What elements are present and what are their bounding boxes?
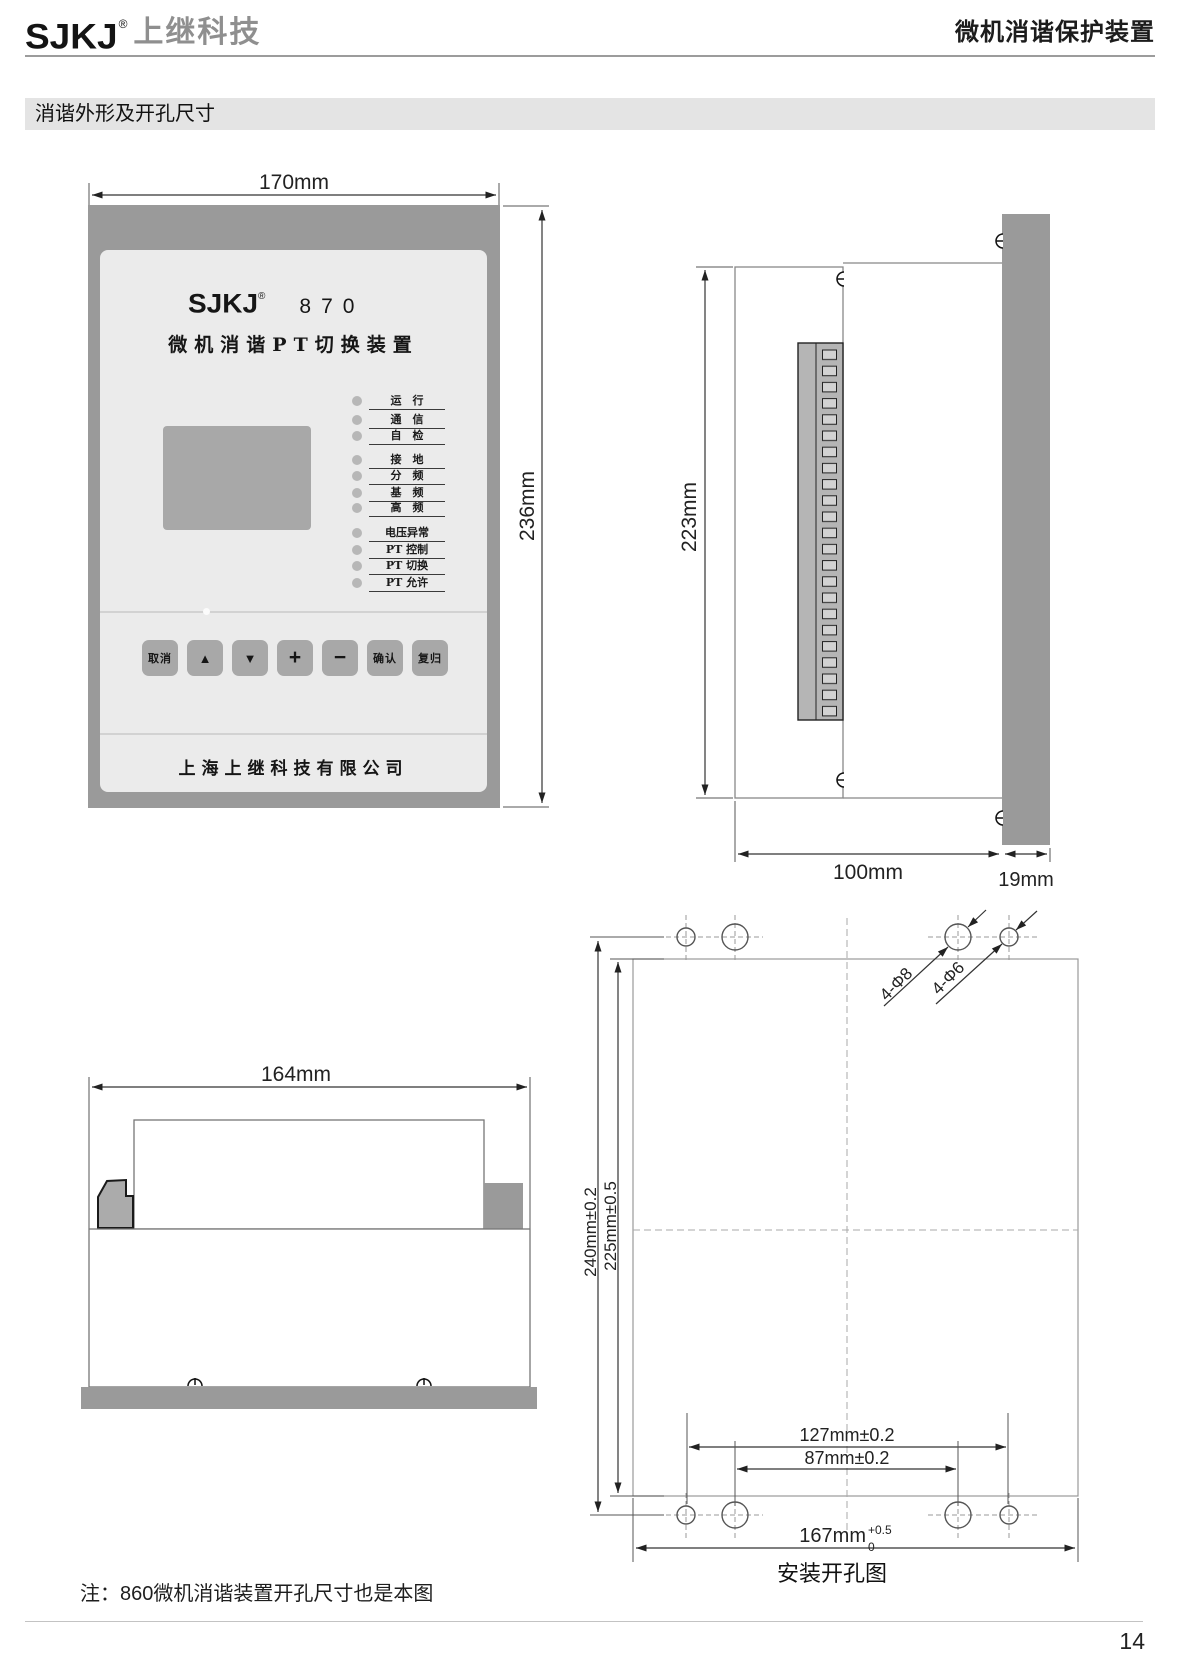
footer-divider bbox=[25, 1621, 1143, 1622]
led-indicator-icon bbox=[352, 431, 362, 441]
button-plus: + bbox=[277, 640, 313, 676]
led-indicator-icon bbox=[352, 415, 362, 425]
led-row: 电压异常 bbox=[352, 525, 445, 540]
led-indicator-icon bbox=[352, 545, 362, 555]
panel-brand: SJKJ®870 bbox=[188, 290, 364, 318]
panel-divider bbox=[100, 611, 487, 613]
label-large-holes: 4-Φ8 bbox=[876, 964, 916, 1004]
dim-install-total: 167mm bbox=[799, 1525, 866, 1547]
led-row: 运 行 bbox=[352, 393, 445, 408]
button-down: ▼ bbox=[232, 640, 268, 676]
manual-page: SJKJ®上继科技 微机消谐保护装置 消谐外形及开孔尺寸 170mm 236mm bbox=[0, 0, 1180, 1668]
dim-install-v-outer: 240mm±0.2 bbox=[581, 1187, 600, 1277]
dim-install-v-inner: 225mm±0.5 bbox=[601, 1181, 620, 1271]
dim-install-total-sup: +0.5 bbox=[868, 1523, 892, 1537]
led-indicator-icon bbox=[352, 396, 362, 406]
led-indicator-icon bbox=[352, 488, 362, 498]
mounting-clip bbox=[98, 1180, 133, 1228]
led-row: PT 控制 bbox=[352, 542, 445, 557]
button-confirm: 确认 bbox=[367, 640, 403, 676]
dim-side-depth: 100mm bbox=[833, 861, 903, 884]
panel-model: 870 bbox=[299, 295, 364, 318]
led-label: 分 频 bbox=[369, 467, 445, 485]
led-label: PT 切换 bbox=[369, 557, 445, 575]
button-minus: − bbox=[322, 640, 358, 676]
led-row: 自 检 bbox=[352, 428, 445, 443]
panel-title: 微机消谐PT切换装置 bbox=[100, 330, 487, 357]
led-indicator-icon bbox=[352, 528, 362, 538]
led-row: PT 允许 bbox=[352, 575, 445, 590]
dim-side-height: 223mm bbox=[678, 482, 701, 552]
front-view-device: SJKJ®870 微机消谐PT切换装置 运 行 通 信 自 检 接 地 分 频 … bbox=[88, 205, 500, 808]
led-label: 电压异常 bbox=[369, 524, 445, 542]
page-number: 14 bbox=[1119, 1628, 1145, 1655]
dim-install-total-sub: 0 bbox=[868, 1540, 875, 1554]
install-caption: 安装开孔图 bbox=[777, 1561, 887, 1586]
led-row: 高 频 bbox=[352, 500, 445, 515]
led-label: 运 行 bbox=[369, 392, 445, 410]
panel-divider bbox=[100, 733, 487, 735]
side-bezel-panel bbox=[1002, 214, 1050, 845]
led-label: PT 允许 bbox=[369, 574, 445, 592]
led-indicator-icon bbox=[352, 471, 362, 481]
button-cancel: 取消 bbox=[142, 640, 178, 676]
led-row: PT 切换 bbox=[352, 558, 445, 573]
footnote: 注：860微机消谐装置开孔尺寸也是本图 bbox=[80, 1577, 433, 1606]
led-indicator-icon bbox=[352, 503, 362, 513]
panel-company-name: 上海上继科技有限公司 bbox=[100, 754, 487, 779]
install-view: 240mm±0.2 225mm±0.5 127mm±0.2 87mm±0.2 1… bbox=[581, 910, 1078, 1586]
led-indicator-icon bbox=[352, 561, 362, 571]
led-label: 高 频 bbox=[369, 499, 445, 517]
dim-front-height: 236mm bbox=[516, 471, 539, 541]
top-bezel-bar bbox=[81, 1387, 537, 1409]
dim-install-h-inner: 87mm±0.2 bbox=[805, 1448, 890, 1468]
panel-divider-dot bbox=[203, 608, 210, 615]
keypad: 取消 ▲ ▼ + − 确认 复归 bbox=[142, 640, 448, 676]
button-up: ▲ bbox=[187, 640, 223, 676]
dim-top-width: 164mm bbox=[261, 1063, 331, 1086]
lcd-screen bbox=[163, 426, 311, 530]
led-row: 分 频 bbox=[352, 468, 445, 483]
led-row: 接 地 bbox=[352, 452, 445, 467]
screw-icon bbox=[837, 234, 1003, 825]
dim-side-bezel: 19mm bbox=[998, 869, 1054, 891]
led-indicator-icon bbox=[352, 578, 362, 588]
registered-mark-icon: ® bbox=[258, 291, 265, 302]
top-view: 164mm bbox=[81, 1063, 537, 1409]
button-reset: 复归 bbox=[412, 640, 448, 676]
side-view: 223mm 100mm 19mm bbox=[678, 214, 1054, 891]
panel-brand-logo: SJKJ bbox=[188, 291, 258, 318]
led-label: 自 检 bbox=[369, 427, 445, 445]
led-row: 通 信 bbox=[352, 412, 445, 427]
led-indicator-icon bbox=[352, 455, 362, 465]
dim-front-width: 170mm bbox=[259, 171, 329, 194]
device-panel: SJKJ®870 微机消谐PT切换装置 运 行 通 信 自 检 接 地 分 频 … bbox=[100, 250, 487, 792]
dim-install-h-outer: 127mm±0.2 bbox=[800, 1425, 895, 1445]
